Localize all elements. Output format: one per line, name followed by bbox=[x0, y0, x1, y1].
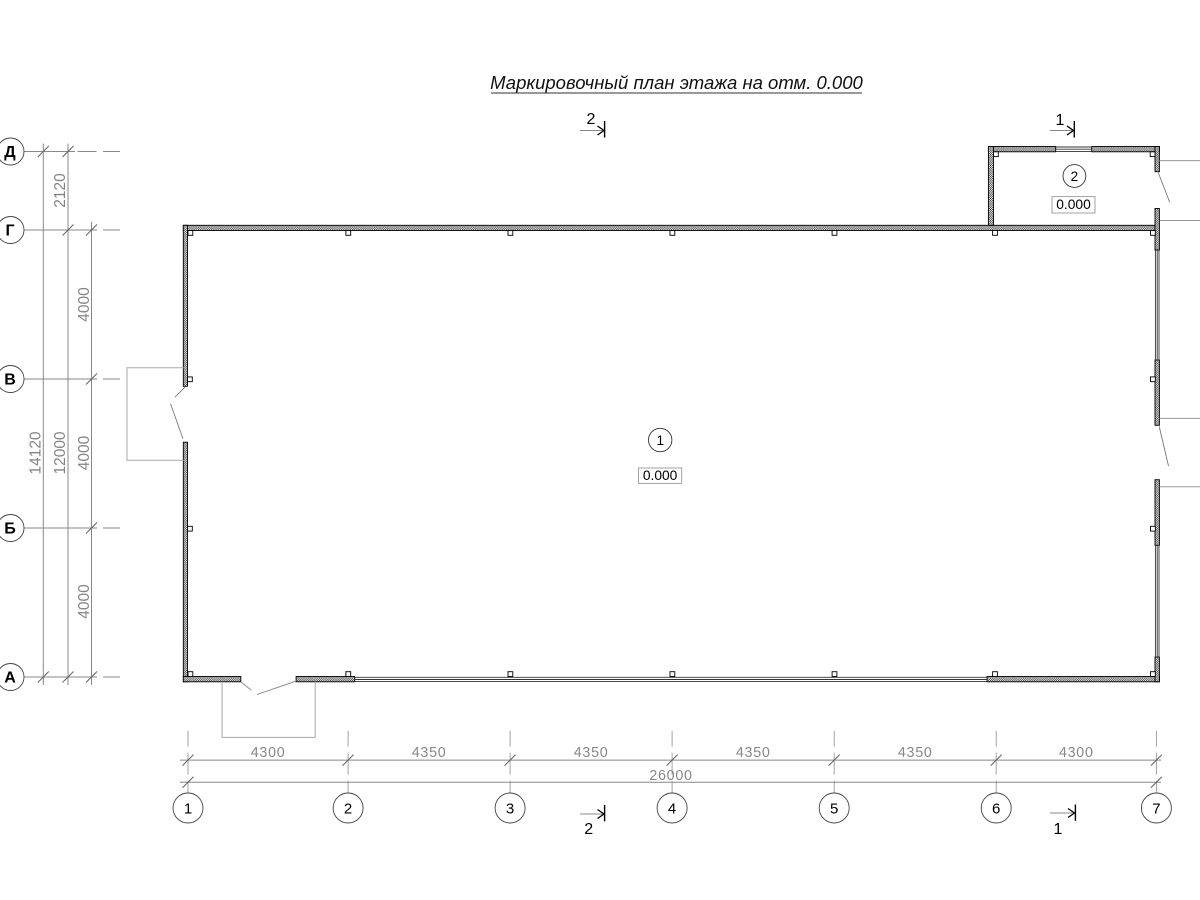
svg-text:2: 2 bbox=[584, 821, 593, 838]
svg-text:В: В bbox=[4, 372, 16, 389]
svg-text:4000: 4000 bbox=[76, 584, 93, 619]
svg-text:0.000: 0.000 bbox=[1056, 197, 1091, 212]
svg-text:7: 7 bbox=[1152, 801, 1160, 818]
svg-text:4300: 4300 bbox=[1059, 745, 1094, 761]
svg-text:14120: 14120 bbox=[28, 431, 45, 474]
svg-text:4: 4 bbox=[668, 801, 676, 818]
svg-text:6: 6 bbox=[992, 801, 1000, 818]
svg-text:4000: 4000 bbox=[76, 287, 93, 322]
svg-text:А: А bbox=[4, 670, 16, 687]
svg-text:3: 3 bbox=[506, 801, 514, 818]
svg-text:4300: 4300 bbox=[251, 745, 286, 761]
svg-text:1: 1 bbox=[1054, 821, 1063, 838]
svg-text:0.000: 0.000 bbox=[643, 468, 678, 483]
svg-text:1: 1 bbox=[184, 801, 192, 818]
svg-text:Б: Б bbox=[4, 521, 16, 538]
svg-text:4350: 4350 bbox=[574, 745, 609, 761]
svg-text:4000: 4000 bbox=[76, 435, 93, 470]
svg-text:Г: Г bbox=[5, 223, 14, 240]
svg-text:4350: 4350 bbox=[898, 745, 933, 761]
svg-text:2: 2 bbox=[344, 801, 352, 818]
svg-text:4350: 4350 bbox=[736, 745, 771, 761]
svg-text:Д: Д bbox=[4, 144, 16, 161]
svg-text:Маркировочный план этажа на от: Маркировочный план этажа на отм. 0.000 bbox=[490, 72, 863, 93]
svg-text:1: 1 bbox=[1056, 112, 1065, 129]
svg-text:2: 2 bbox=[587, 111, 596, 128]
svg-text:12000: 12000 bbox=[52, 431, 69, 474]
svg-text:1: 1 bbox=[656, 433, 664, 448]
svg-text:26000: 26000 bbox=[649, 768, 692, 784]
svg-text:2120: 2120 bbox=[52, 173, 69, 208]
svg-text:4350: 4350 bbox=[412, 745, 447, 761]
svg-text:5: 5 bbox=[830, 801, 838, 818]
svg-text:2: 2 bbox=[1071, 169, 1079, 184]
